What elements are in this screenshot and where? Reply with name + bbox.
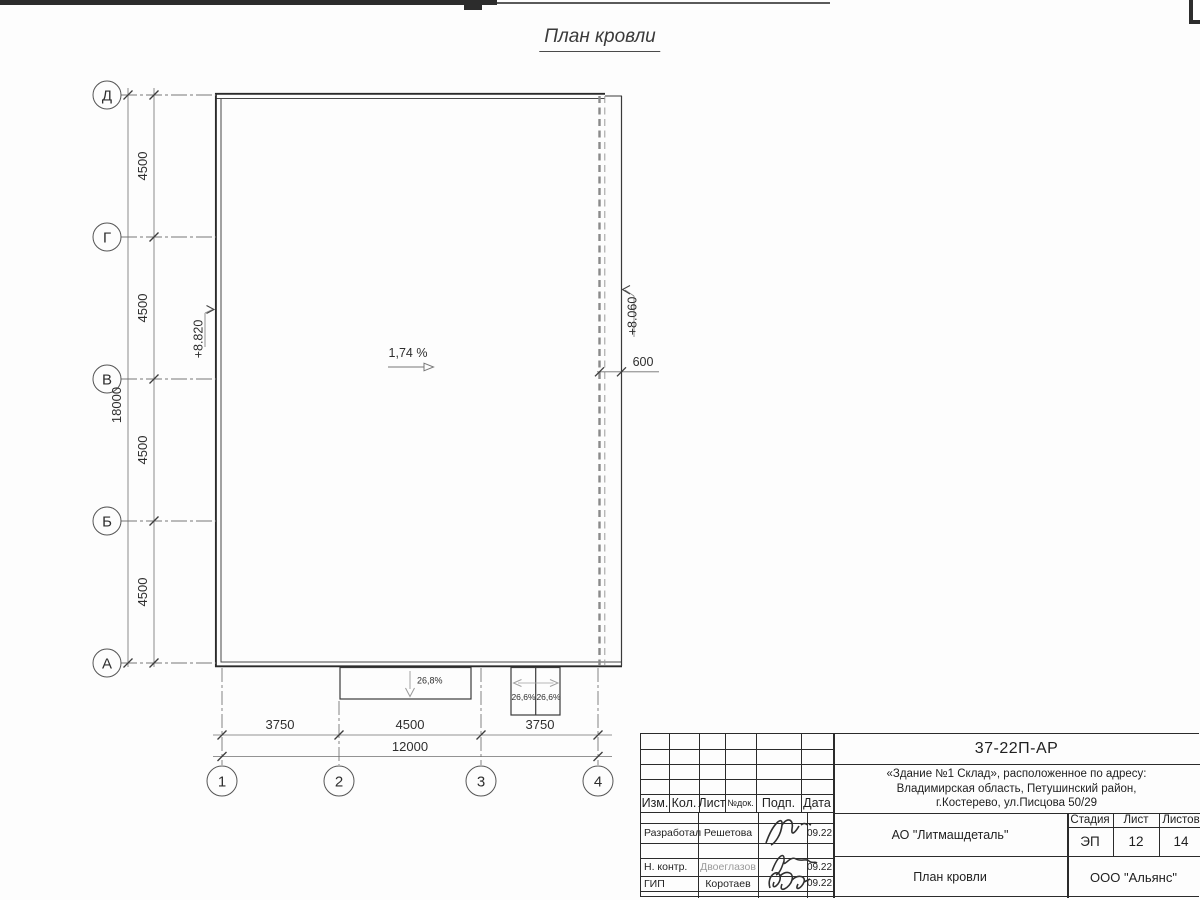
elevation-mark-right: +8.060 xyxy=(623,286,640,338)
row-dim: 4500 xyxy=(135,152,150,181)
col-dim: 3750 xyxy=(266,717,295,732)
svg-text:1,74 %: 1,74 % xyxy=(389,346,428,360)
col-axis-label: 2 xyxy=(335,774,343,791)
tb-col-kol: Кол. xyxy=(669,794,699,812)
row-dim: 4500 xyxy=(135,294,150,323)
tb-company: АО "Литмашдеталь" xyxy=(833,813,1067,856)
col-axis-label: 1 xyxy=(218,774,226,791)
svg-text:+8.060: +8.060 xyxy=(626,297,640,336)
row-axis-label: А xyxy=(102,656,112,673)
tb-name: Коротаев xyxy=(698,876,758,891)
tb-stage-label: Стадия xyxy=(1067,813,1113,827)
roof-edge-dashed-lines xyxy=(600,96,605,665)
elevation-mark-left: +8.820 xyxy=(192,306,215,359)
canopy-slope-wide: 26,8% xyxy=(417,676,443,686)
row-axis-label: Д xyxy=(102,88,112,105)
svg-text:600: 600 xyxy=(633,355,654,369)
tb-doc-number: 37-22П-АР xyxy=(833,734,1200,764)
canopy-wide: 26,8% xyxy=(340,668,471,700)
col-axis-label: 4 xyxy=(594,774,602,791)
tb-address-line: Владимирская область, Петушинский район, xyxy=(833,782,1200,797)
row-dim: 4500 xyxy=(135,578,150,607)
tb-sheet-label: Лист xyxy=(1113,813,1159,827)
tb-col-izm: Изм. xyxy=(641,794,669,812)
tb-col-data: Дата xyxy=(801,794,833,812)
svg-text:+8.820: +8.820 xyxy=(192,320,206,359)
col-dim: 4500 xyxy=(396,717,425,732)
tb-role: Разработал xyxy=(644,823,698,843)
tb-col-list: Лист xyxy=(699,794,725,812)
tb-sheets-value: 14 xyxy=(1159,827,1200,856)
tb-name: Двоеглазов xyxy=(698,858,758,876)
tb-name: Решетова xyxy=(698,823,758,843)
row-axis-label: Г xyxy=(103,230,111,247)
col-axis-bubbles xyxy=(207,766,613,796)
tb-address-line: г.Костерево, ул.Писцова 50/29 xyxy=(833,796,1200,811)
tb-sheet-value: 12 xyxy=(1113,827,1159,856)
tb-address-line: «Здание №1 Склад», расположенное по адре… xyxy=(833,767,1200,782)
tb-col-podp: Подп. xyxy=(756,794,801,812)
tb-sheets-label: Листов xyxy=(1159,813,1200,827)
canopy-small: 26,6% 26,6% xyxy=(511,668,561,716)
row-dim: 4500 xyxy=(135,436,150,465)
signature-razrabotal xyxy=(763,813,815,849)
tb-role: ГИП xyxy=(644,876,698,891)
row-axis-label: В xyxy=(102,372,112,389)
tb-sheet-name: План кровли xyxy=(833,856,1067,898)
col-dim: 3750 xyxy=(526,717,555,732)
roof-outline xyxy=(215,93,622,667)
row-axis-label: Б xyxy=(102,514,112,531)
tb-role: Н. контр. xyxy=(644,858,698,876)
canopy-slope-left: 26,6% xyxy=(511,692,536,702)
slope-annotation-main: 1,74 % xyxy=(388,346,434,371)
tb-address: «Здание №1 Склад», расположенное по адре… xyxy=(833,767,1200,813)
col-axis-label: 3 xyxy=(477,774,485,791)
tb-stage-value: ЭП xyxy=(1067,827,1113,856)
title-block: Изм. Кол. Лист №док. Подп. Дата Разработ… xyxy=(640,733,1199,897)
canopy-slope-right: 26,6% xyxy=(536,692,561,702)
signature-gip xyxy=(764,866,814,896)
tb-org: ООО "Альянс" xyxy=(1067,856,1200,898)
row-total-dim: 18000 xyxy=(109,387,124,423)
tb-col-ndok: №док. xyxy=(725,794,756,812)
col-total-dim: 12000 xyxy=(392,739,428,754)
